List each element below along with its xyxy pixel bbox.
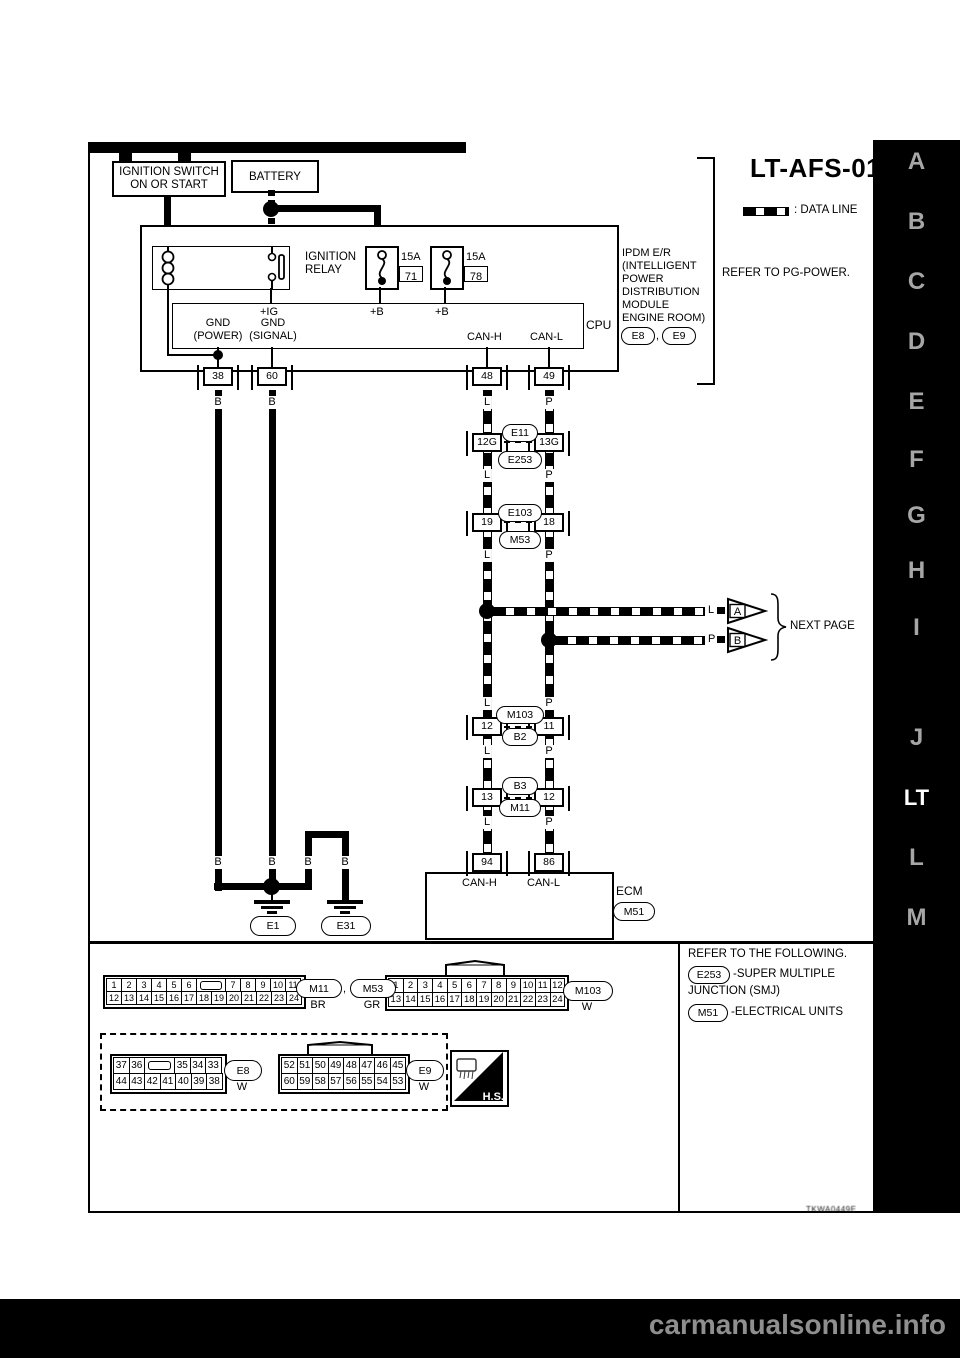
pin-cell: 43 [129, 1073, 146, 1090]
pin-cell: 1 [106, 978, 122, 992]
pin-cell: 6 [461, 978, 477, 993]
connector-comma: , [656, 330, 659, 342]
pin-cell: 9 [506, 978, 522, 993]
junction-connector-top: E103 [498, 504, 542, 522]
ipdm-name: IPDM E/R (INTELLIGENT POWER DISTRIBUTION… [622, 247, 705, 325]
relay-symbol [153, 247, 289, 289]
pin-cell: 5 [447, 978, 463, 993]
ref-m51: M51 [688, 1004, 728, 1022]
gnd-wire-b1 [215, 390, 222, 891]
pin-49: 49 [534, 367, 564, 386]
fuse-71-number: 71 [399, 266, 423, 282]
hs-view-icon: H.S. [450, 1050, 509, 1107]
pin-cell: 35 [174, 1057, 191, 1074]
junction-connector-bottom: M11 [499, 799, 541, 817]
sidebar-section-lt: LT [873, 786, 960, 810]
ecm-box [425, 872, 614, 940]
junction-pin-left: 12G [472, 433, 502, 452]
refer-following: REFER TO THE FOLLOWING. [688, 948, 847, 960]
ground-symbol-e31 [327, 900, 363, 904]
pin-cell: 2 [121, 978, 137, 992]
sidebar-section-d: D [873, 330, 960, 354]
fuse-71-amp: 15A [401, 251, 421, 263]
pin-cell: 42 [144, 1073, 161, 1090]
watermark-link[interactable]: carmanualsonline.info [649, 1309, 946, 1341]
pin-cell: 53 [390, 1073, 407, 1090]
connector-view-e8: 373635343344434241403938 [110, 1054, 227, 1094]
can-l-drop [548, 347, 550, 367]
section-separator [88, 941, 873, 944]
pin-cell: 6 [181, 978, 197, 992]
footer-divider [678, 944, 680, 1211]
next-page-wire-l-color: L [708, 604, 714, 616]
pin-cell: 15 [151, 991, 167, 1005]
wire-color: L [482, 697, 492, 710]
sidebar-section-l: L [873, 846, 960, 870]
cropped-stub [178, 153, 191, 161]
pin-cell: 57 [328, 1073, 345, 1090]
pin-cell: 40 [175, 1073, 192, 1090]
pin-86: 86 [534, 853, 564, 872]
fuse-78-number: 78 [464, 266, 488, 282]
connector-label-e8: E8 [224, 1060, 262, 1081]
junction-dot [541, 632, 557, 648]
pin-cell: 46 [374, 1057, 391, 1074]
connector-view-m11-m53: 123456789101112131415161718192021222324 [103, 975, 306, 1009]
connector-ref-e8: E8 [621, 327, 655, 345]
junction-connector-bottom: E253 [498, 451, 542, 469]
pin-cell: 58 [312, 1073, 329, 1090]
connector-label-m53: M53 [350, 979, 396, 998]
pin-cell: 47 [359, 1057, 376, 1074]
can-h-wire [483, 390, 492, 853]
cpu-pin-b2: +B [435, 306, 449, 318]
keyway-slot [144, 1057, 175, 1074]
ground-symbol-e1 [267, 911, 277, 914]
wire-color: P [543, 469, 554, 482]
cpu-gnd-signal: GND (SIGNAL) [246, 317, 300, 343]
cropped-top-bar [88, 142, 466, 153]
pin-cell: 21 [241, 991, 257, 1005]
refer-pg-power: REFER TO PG-POWER. [722, 267, 850, 279]
wiring-diagram-page: LT-AFS-01 : DATA LINE REFER TO PG-POWER.… [0, 0, 960, 1358]
gnd-signal-drop [271, 347, 273, 367]
sidebar-section-j: J [873, 726, 960, 750]
sidebar-section-h: H [873, 559, 960, 583]
pin-cell: 59 [297, 1073, 314, 1090]
pin-cell: 20 [491, 992, 507, 1007]
next-page-label: NEXT PAGE [790, 620, 855, 632]
connector-label-m103: M103 [563, 981, 613, 1001]
fuse-78-box [430, 246, 464, 290]
pin-cell: 23 [535, 992, 551, 1007]
junction-connector-bottom: M53 [499, 531, 541, 549]
battery-box: BATTERY [231, 160, 319, 193]
junction-dot [479, 603, 495, 619]
fuse-78-amp: 15A [466, 251, 486, 263]
cpu-gnd-power: GND (POWER) [190, 317, 246, 343]
pin-cell: 14 [403, 992, 419, 1007]
pin-cell: 39 [191, 1073, 208, 1090]
pin-60: 60 [257, 367, 287, 386]
next-page-wire-p-color: P [708, 633, 715, 645]
junction-connector-top: B3 [502, 777, 538, 795]
stub [717, 607, 725, 614]
ignition-relay-box [152, 246, 290, 290]
wire-color: L [482, 745, 492, 758]
stub [717, 636, 725, 643]
pin-cell: 11 [535, 978, 551, 993]
doc-code: TKWA0449E [806, 1205, 856, 1214]
sidebar-section-a: A [873, 150, 960, 174]
data-line-legend-swatch [743, 207, 789, 216]
cpu-can-l: CAN-L [530, 331, 563, 343]
next-page-wire-l [493, 607, 705, 616]
wire-color: L [482, 396, 492, 409]
pin-cell: 5 [166, 978, 182, 992]
pin-cell: 23 [271, 991, 287, 1005]
battery-label: BATTERY [249, 171, 301, 183]
sidebar-section-c: C [873, 270, 960, 294]
fuse-symbol [432, 248, 462, 288]
junction-connector-bottom: B2 [502, 728, 538, 746]
pin-cell: 22 [256, 991, 272, 1005]
gnd-power-drop [217, 347, 219, 367]
pin-48: 48 [472, 367, 502, 386]
connector-ref-e9: E9 [662, 327, 696, 345]
wire-color: B [302, 856, 313, 869]
cpu-can-h: CAN-H [467, 331, 502, 343]
connector-view-m103: 123456789101112131415161718192021222324 [385, 975, 569, 1011]
sidebar-section-f: F [873, 448, 960, 472]
pin-cell: 60 [281, 1073, 298, 1090]
pin-cell: 8 [240, 978, 256, 992]
gnd-wire-b2 [269, 390, 276, 887]
cpu-label: CPU [586, 318, 611, 332]
ecm-can-h: CAN-H [462, 877, 497, 889]
sidebar-section-b: B [873, 210, 960, 234]
pin-38: 38 [203, 367, 233, 386]
connector-view-e9: 52515049484746456059585756555453 [278, 1054, 410, 1094]
connector-label-m11: M11 [296, 979, 342, 998]
pin-cell: 10 [520, 978, 536, 993]
can-h-drop [486, 347, 488, 367]
pin-cell: 17 [447, 992, 463, 1007]
next-page-brace [769, 592, 789, 662]
ecm-connector-ref: M51 [613, 902, 655, 921]
pin-cell: 52 [281, 1057, 298, 1074]
ignition-switch-box: IGNITION SWITCH ON OR START [112, 161, 226, 197]
pin-cell: 9 [255, 978, 271, 992]
wire-color: P [543, 745, 554, 758]
pin-cell: 17 [181, 991, 197, 1005]
wire-color: B [212, 856, 223, 869]
wire-color: B [266, 396, 277, 409]
coil-to-gnd [167, 354, 219, 356]
wire-color: P [543, 697, 554, 710]
ignition-relay-label: IGNITION RELAY [305, 251, 356, 277]
ref-e253-desc: -SUPER MULTIPLE [733, 968, 835, 980]
pin-cell: 15 [417, 992, 433, 1007]
wire-color: B [266, 856, 277, 869]
pin-cell: 7 [476, 978, 492, 993]
ground-symbol-e31 [334, 906, 356, 909]
ref-e253: E253 [688, 966, 730, 984]
sidebar-section-m: M [873, 906, 960, 930]
fuse-symbol [367, 248, 397, 288]
pin-cell: 7 [225, 978, 241, 992]
cropped-stub [119, 153, 132, 161]
comma: , [343, 983, 346, 995]
ignition-switch-label: IGNITION SWITCH ON OR START [119, 166, 219, 192]
coil-to-gnd [167, 288, 169, 356]
arrow-b-label: B [734, 635, 741, 647]
sidebar-section-g: G [873, 504, 960, 528]
pin-cell: 38 [206, 1073, 223, 1090]
next-page-arrow-b: B [726, 626, 768, 654]
pin-cell: 3 [417, 978, 433, 993]
fuse-71-box [365, 246, 399, 290]
pin-cell: 56 [343, 1073, 360, 1090]
pin-cell: 50 [312, 1057, 329, 1074]
pin-cell: 44 [113, 1073, 130, 1090]
pin-cell: 16 [432, 992, 448, 1007]
wire-color: L [482, 816, 492, 829]
next-page-arrow-a: A [726, 597, 768, 625]
cpu-pin-b1: +B [370, 306, 384, 318]
pin-cell: 54 [374, 1073, 391, 1090]
ecm-can-l: CAN-L [527, 877, 560, 889]
pin-cell: 48 [343, 1057, 360, 1074]
next-page-wire-p [555, 636, 705, 645]
pin-cell: 2 [403, 978, 419, 993]
connector-color-e8: W [224, 1081, 260, 1093]
ground-symbol-e31 [340, 911, 350, 914]
pin-cell: 22 [520, 992, 536, 1007]
pin-cell: 55 [359, 1073, 376, 1090]
junction-connector-top: M103 [496, 706, 544, 724]
arrow-a-label: A [734, 606, 742, 618]
pin-cell: 20 [226, 991, 242, 1005]
footer-bar: carmanualsonline.info [0, 1299, 960, 1358]
sidebar-section-e: E [873, 390, 960, 414]
pin-cell: 13 [121, 991, 137, 1005]
pin-cell: 51 [297, 1057, 314, 1074]
pin-cell: 19 [211, 991, 227, 1005]
pin-cell: 33 [205, 1057, 222, 1074]
ref-e253-desc2: JUNCTION (SMJ) [688, 985, 780, 997]
can-l-wire [545, 390, 554, 853]
wire-color: L [482, 549, 492, 562]
fuse2-to-b [444, 287, 446, 304]
pin-cell: 3 [136, 978, 152, 992]
ground-ref-e1: E1 [250, 916, 296, 936]
ref-m51-desc: -ELECTRICAL UNITS [731, 1006, 843, 1018]
pin-94: 94 [472, 853, 502, 872]
connector-label-e9: E9 [406, 1060, 444, 1081]
fuse1-to-b [379, 287, 381, 304]
pin-cell: 16 [166, 991, 182, 1005]
ground-symbol-e1 [261, 906, 283, 909]
pin-cell: 18 [461, 992, 477, 1007]
wire-color: B [212, 396, 223, 409]
pin-cell: 18 [196, 991, 212, 1005]
wire-color: P [543, 396, 554, 409]
battery-feed-wire [271, 205, 381, 212]
sidebar-tab-bar: ABCDEFGHIJLTLM [873, 140, 960, 1213]
pin-cell: 21 [506, 992, 522, 1007]
pin-cell: 34 [190, 1057, 207, 1074]
pin-cell: 8 [491, 978, 507, 993]
sidebar-section-i: I [873, 616, 960, 640]
keyway-slot [196, 978, 226, 992]
pin-cell: 41 [160, 1073, 177, 1090]
ecm-label: ECM [616, 884, 643, 898]
ground-ref-e31: E31 [321, 916, 371, 936]
pin-cell: 37 [113, 1057, 130, 1074]
wire-color: P [543, 549, 554, 562]
junction-pin-left: 13 [472, 788, 502, 807]
wire-color: P [543, 816, 554, 829]
ground-symbol-e1 [254, 900, 290, 904]
pin-cell: 10 [270, 978, 286, 992]
junction-pin-right: 13G [534, 433, 564, 452]
page-title: LT-AFS-01 [750, 153, 881, 184]
data-line-legend-label: : DATA LINE [794, 204, 857, 216]
pin-cell: 19 [476, 992, 492, 1007]
pin-cell: 14 [136, 991, 152, 1005]
relay-to-ig [270, 288, 272, 304]
frame-bottom [88, 1211, 873, 1213]
wire-color: B [339, 856, 350, 869]
wire-color: L [482, 469, 492, 482]
frame-left [88, 142, 90, 1213]
pin-cell: 49 [328, 1057, 345, 1074]
connector-color-e9: W [406, 1081, 442, 1093]
pin-cell: 4 [432, 978, 448, 993]
hs-label: H.S. [483, 1091, 504, 1103]
pin-cell: 12 [106, 991, 122, 1005]
connector-color-w: W [563, 1001, 611, 1013]
junction-connector-top: E11 [502, 424, 538, 442]
pin-cell: 36 [129, 1057, 146, 1074]
pin-cell: 45 [390, 1057, 407, 1074]
pin-cell: 4 [151, 978, 167, 992]
